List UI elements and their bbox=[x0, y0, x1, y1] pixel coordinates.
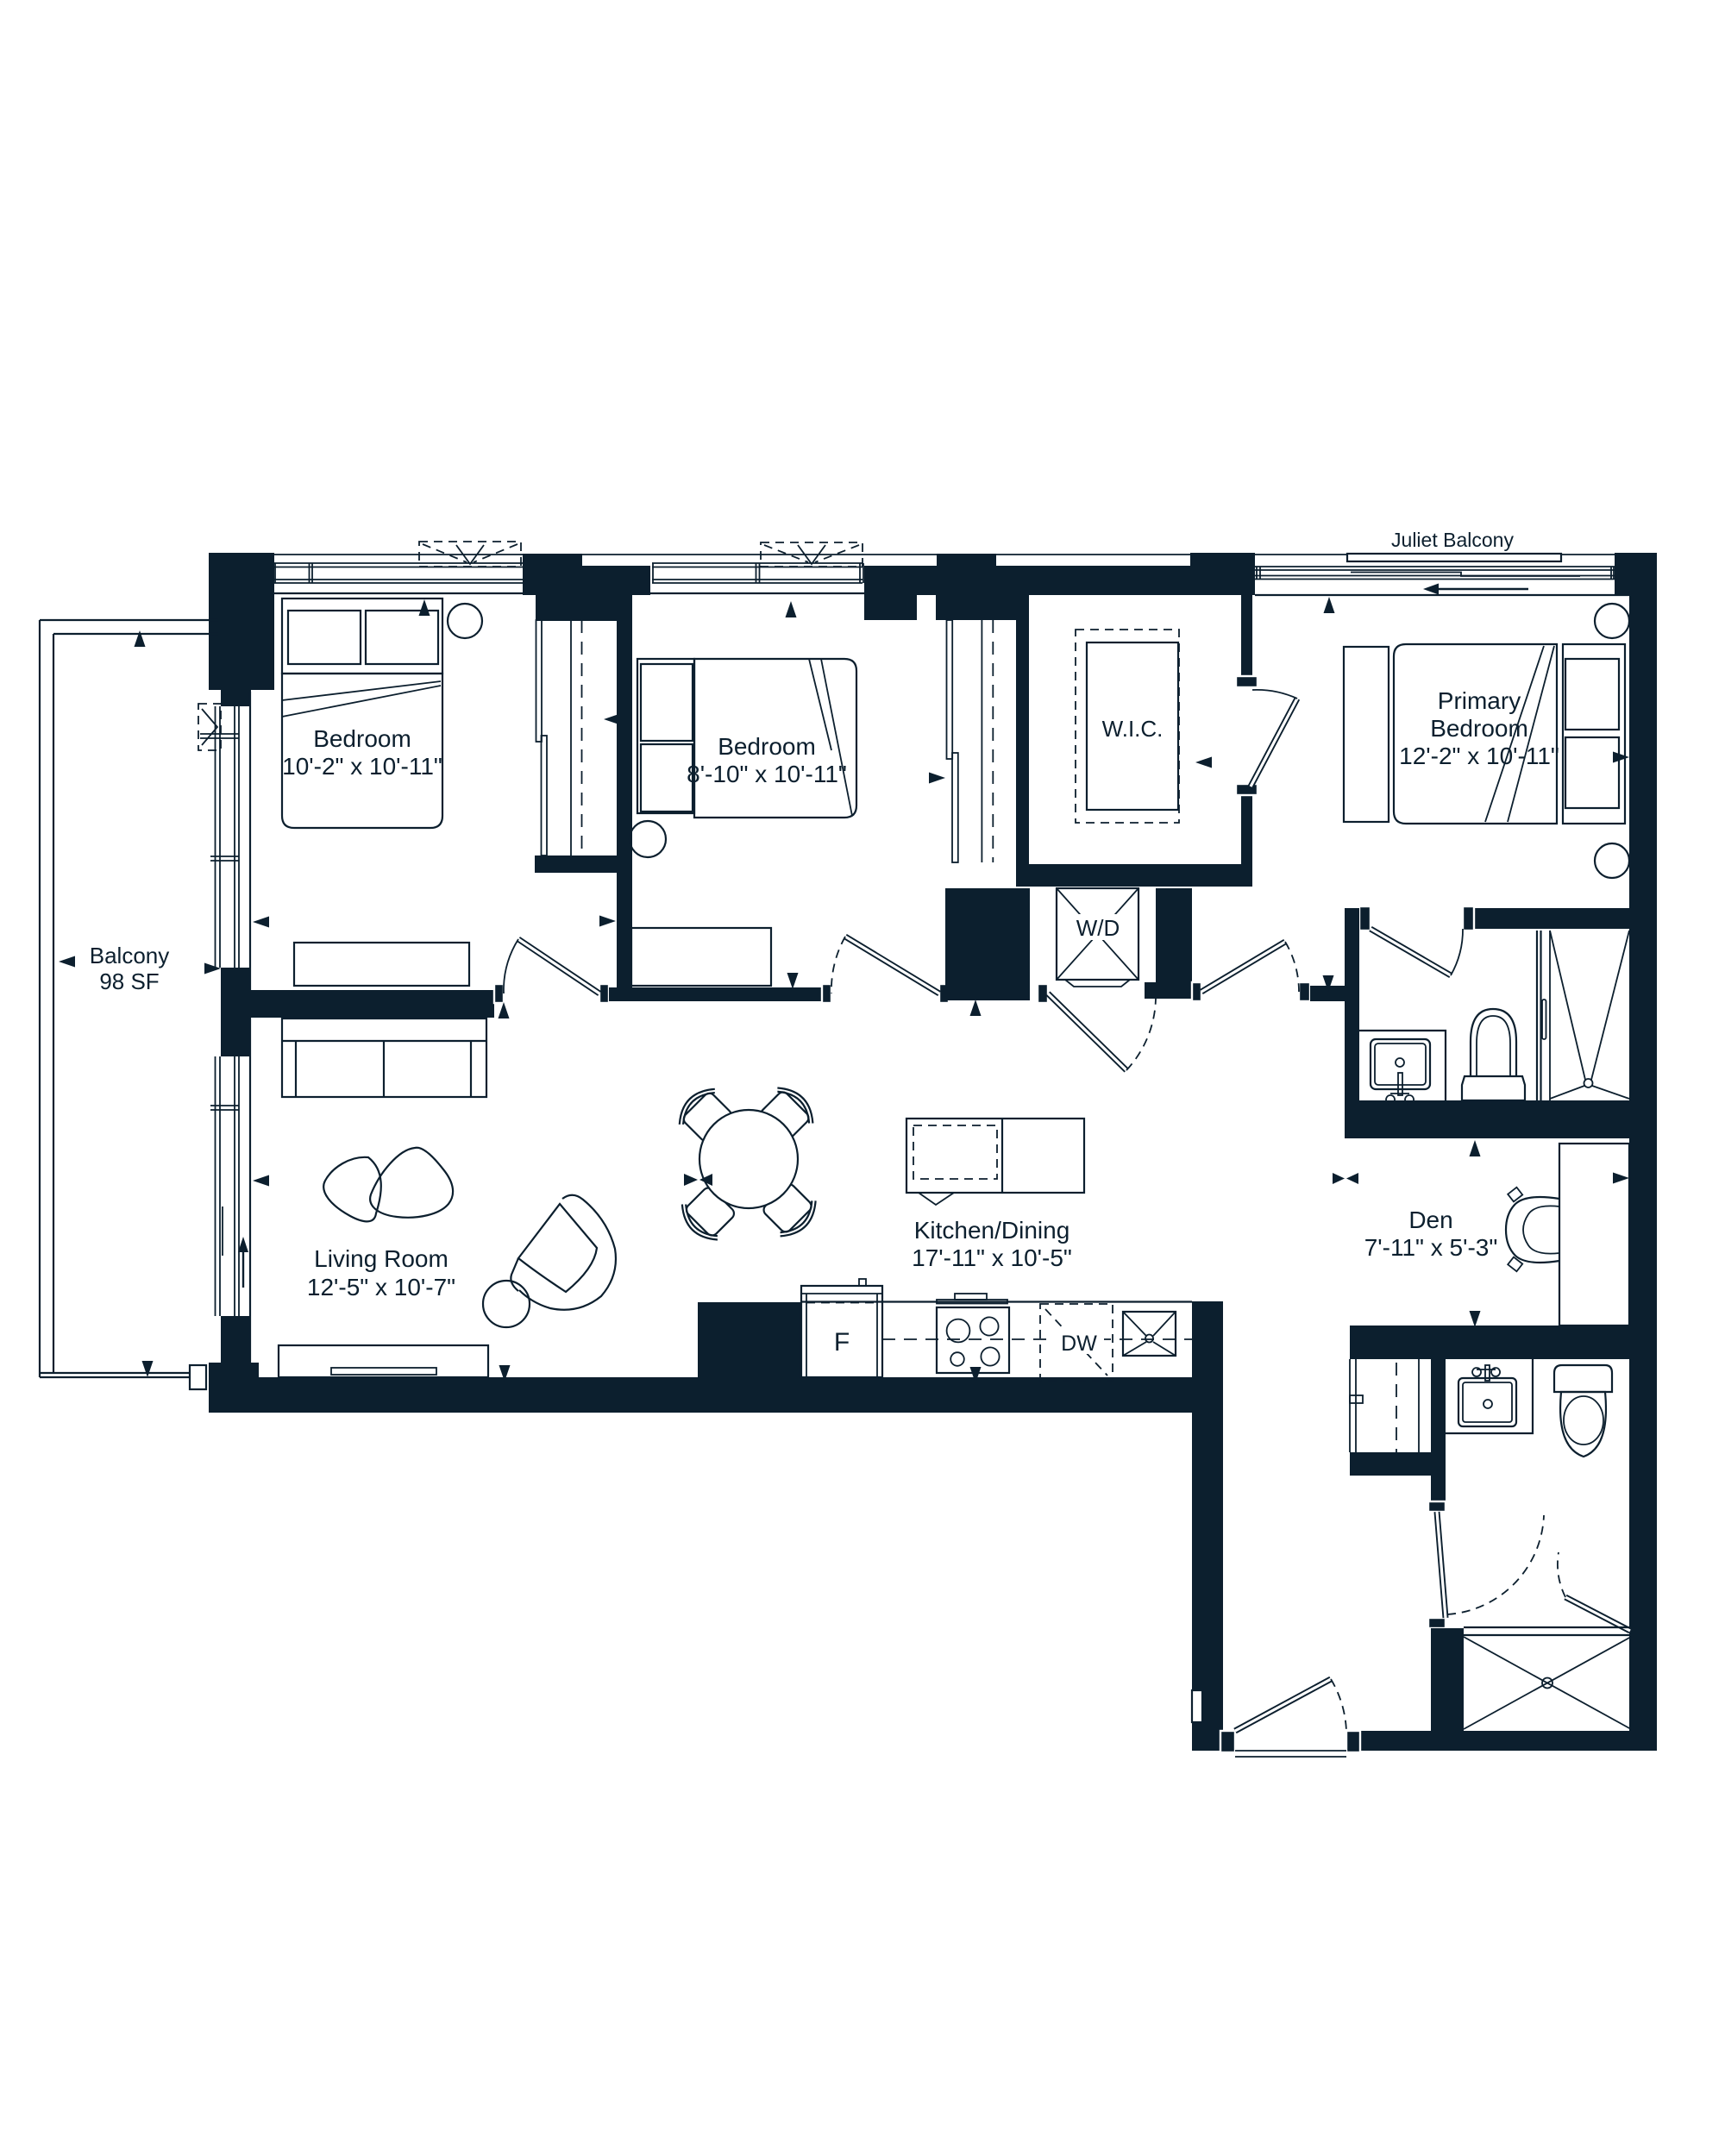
svg-text:Juliet Balcony: Juliet Balcony bbox=[1391, 529, 1514, 551]
svg-text:10'-2" x 10'-11": 10'-2" x 10'-11" bbox=[282, 753, 442, 780]
svg-text:F: F bbox=[834, 1328, 850, 1357]
svg-text:Bedroom: Bedroom bbox=[718, 733, 816, 760]
svg-text:Kitchen/Dining: Kitchen/Dining bbox=[914, 1217, 1070, 1244]
svg-text:Living Room: Living Room bbox=[314, 1245, 448, 1272]
svg-text:Bedroom: Bedroom bbox=[313, 725, 411, 752]
svg-text:12'-5" x 10'-7": 12'-5" x 10'-7" bbox=[307, 1274, 455, 1300]
svg-text:DW: DW bbox=[1061, 1332, 1097, 1356]
svg-text:98 SF: 98 SF bbox=[99, 968, 159, 994]
svg-text:8'-10" x 10'-11": 8'-10" x 10'-11" bbox=[687, 761, 847, 787]
svg-text:12'-2" x 10'-11": 12'-2" x 10'-11" bbox=[1399, 743, 1559, 769]
svg-text:7'-11" x 5'-3": 7'-11" x 5'-3" bbox=[1364, 1234, 1498, 1261]
svg-text:17'-11" x 10'-5": 17'-11" x 10'-5" bbox=[912, 1244, 1072, 1271]
svg-text:Den: Den bbox=[1408, 1206, 1452, 1233]
svg-text:Primary: Primary bbox=[1438, 687, 1521, 714]
svg-text:W/D: W/D bbox=[1076, 915, 1120, 941]
svg-text:Balcony: Balcony bbox=[90, 943, 170, 968]
svg-text:W.I.C.: W.I.C. bbox=[1102, 716, 1164, 742]
